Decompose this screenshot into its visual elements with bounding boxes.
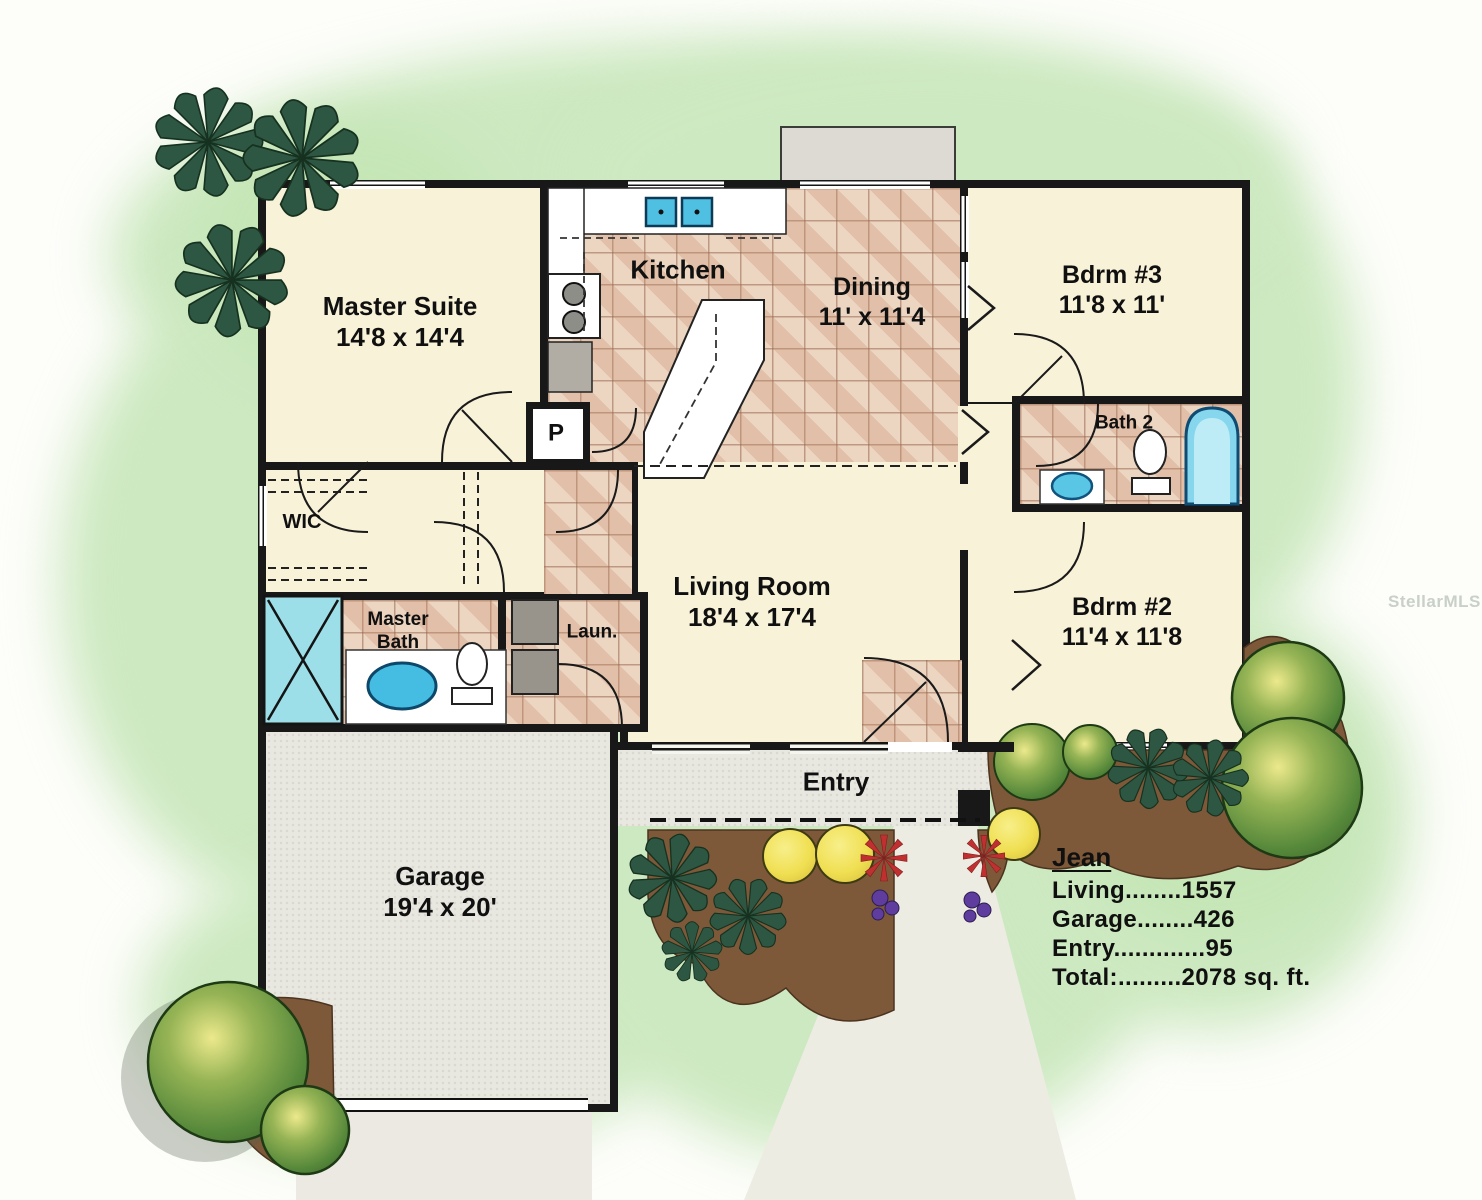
palm-plant — [161, 210, 303, 350]
bathroom-sink — [368, 663, 436, 709]
area-legend: Jean Living........1557 Garage........42… — [1052, 842, 1310, 992]
door-chevron — [1012, 640, 1040, 690]
legend-garage-line: Garage........426 — [1052, 905, 1310, 934]
dryer — [512, 650, 558, 694]
room-name: Entry — [803, 766, 869, 797]
bath2-label: Bath 2 — [1095, 413, 1153, 436]
kitchen-island — [644, 300, 764, 478]
palm-plant — [143, 78, 272, 206]
dining-label: Dining 11' x 11'4 — [819, 272, 925, 332]
yellow-bush — [763, 829, 817, 883]
yellow-bush — [988, 808, 1040, 860]
room-name: Bdrm #3 — [1059, 260, 1165, 290]
bdrm3-door — [1014, 334, 1084, 404]
legend-living-line: Living........1557 — [1052, 876, 1310, 905]
room-dims: 11' x 11'4 — [819, 302, 925, 332]
washer — [512, 600, 558, 644]
yellow-bush — [816, 825, 874, 883]
round-tree — [261, 1086, 349, 1174]
bath2-door — [1036, 404, 1098, 466]
bdrm2-door — [1014, 522, 1084, 592]
room-name: Master Bath — [348, 609, 448, 655]
wic-label: WIC — [283, 510, 322, 534]
stellar-mls-watermark: StellarMLS — [1388, 592, 1481, 612]
room-name: Garage — [383, 861, 497, 892]
room-dims: 18'4 x 17'4 — [673, 602, 830, 633]
room-name: Bath 2 — [1095, 413, 1153, 436]
hall-door — [556, 470, 618, 532]
living-room-label: Living Room 18'4 x 17'4 — [673, 571, 830, 633]
room-name: Laun. — [567, 622, 618, 645]
round-tree — [1222, 718, 1362, 858]
room-name: WIC — [283, 510, 322, 534]
pantry-door — [592, 408, 636, 452]
kitchen-cabinet — [548, 342, 592, 392]
bdrm3-label: Bdrm #3 11'8 x 11' — [1059, 260, 1165, 320]
room-name: Master Suite — [323, 291, 478, 322]
room-name: Bdrm #2 — [1062, 592, 1182, 622]
stove-burner — [563, 311, 585, 333]
red-flower — [861, 835, 907, 881]
laundry-garage-door — [558, 664, 622, 728]
room-name: Kitchen — [630, 254, 725, 285]
laundry-label: Laun. — [567, 622, 618, 645]
garage-label: Garage 19'4 x 20' — [383, 861, 497, 923]
toilet-tank — [1132, 478, 1170, 494]
room-name: Dining — [819, 272, 925, 302]
green-bush — [994, 724, 1070, 800]
door-chevron — [968, 286, 994, 330]
entry-label: Entry — [803, 766, 869, 797]
room-dims: 19'4 x 20' — [383, 892, 497, 923]
legend-entry-line: Entry.............95 — [1052, 934, 1310, 963]
kitchen-fixtures — [548, 188, 786, 478]
floor-plan-scene: Master Suite 14'8 x 14'4 Kitchen Dining … — [0, 0, 1482, 1200]
bathtub-inner — [1194, 418, 1230, 504]
master-bath-door — [434, 522, 504, 592]
kitchen-counter — [548, 188, 584, 276]
toilet — [1134, 430, 1166, 474]
room-dims: 11'8 x 11' — [1059, 290, 1165, 320]
bdrm2-label: Bdrm #2 11'4 x 11'8 — [1062, 592, 1182, 652]
toilet-tank — [452, 688, 492, 704]
pantry-label: P — [548, 420, 564, 449]
red-flower — [963, 835, 1004, 876]
front-door — [864, 658, 948, 742]
master-bath-label: Master Bath — [348, 609, 448, 655]
kitchen-label: Kitchen — [630, 254, 725, 285]
closet-dashes — [268, 466, 956, 588]
room-name: Living Room — [673, 571, 830, 602]
master-suite-door — [442, 392, 512, 462]
plan-name: Jean — [1052, 842, 1310, 873]
bathroom-sink — [1052, 473, 1092, 499]
toilet — [457, 643, 487, 685]
room-name: P — [548, 420, 564, 449]
legend-total-line: Total:.........2078 sq. ft. — [1052, 963, 1310, 992]
room-dims: 11'4 x 11'8 — [1062, 622, 1182, 652]
door-chevron — [962, 410, 988, 454]
stove-burner — [563, 283, 585, 305]
palm-plant — [220, 77, 383, 240]
room-dims: 14'8 x 14'4 — [323, 322, 478, 353]
master-suite-label: Master Suite 14'8 x 14'4 — [323, 291, 478, 353]
